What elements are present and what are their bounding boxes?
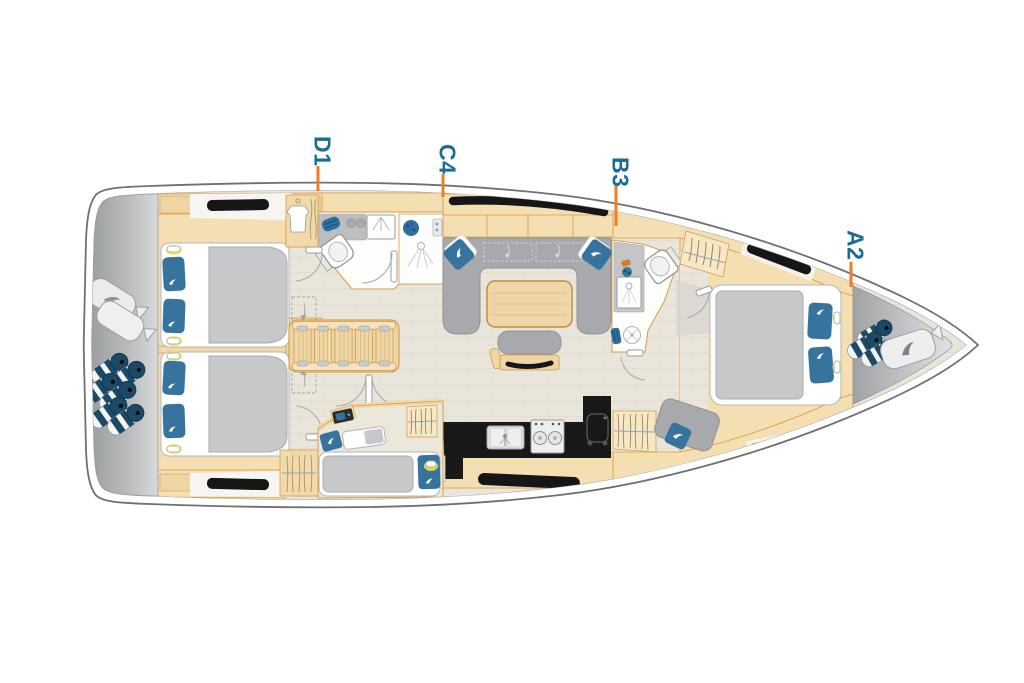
cabin-label-d1: D1 [310, 136, 336, 166]
aft-wardrobe-lower [280, 450, 318, 496]
cabin-label-c4: C4 [435, 144, 461, 174]
aft-cabin-upper-double-bed [161, 243, 289, 347]
cabin-label-b3: B3 [608, 157, 634, 187]
companionway-stairs [289, 320, 399, 372]
yacht-layout-plan: D1 C4 B3 A2 [0, 0, 1024, 683]
stern-deck-area [92, 194, 158, 496]
hanging-locker-fwd-bottom [613, 411, 656, 452]
cabin-label-a2: A2 [843, 230, 869, 260]
owner-cabin-island-bed [687, 285, 842, 405]
saloon-bench-tv [489, 331, 561, 370]
layout-drawing: D1 C4 B3 A2 [0, 0, 1024, 683]
shower-mat-icon [403, 220, 419, 236]
single-berth-cabin [318, 401, 443, 498]
aft-cabin-lower-double-bed [161, 351, 289, 456]
door-leaf [627, 350, 643, 356]
towel-icon [622, 267, 632, 277]
aft-wardrobe-upper [286, 195, 318, 247]
saloon-table [487, 281, 572, 327]
